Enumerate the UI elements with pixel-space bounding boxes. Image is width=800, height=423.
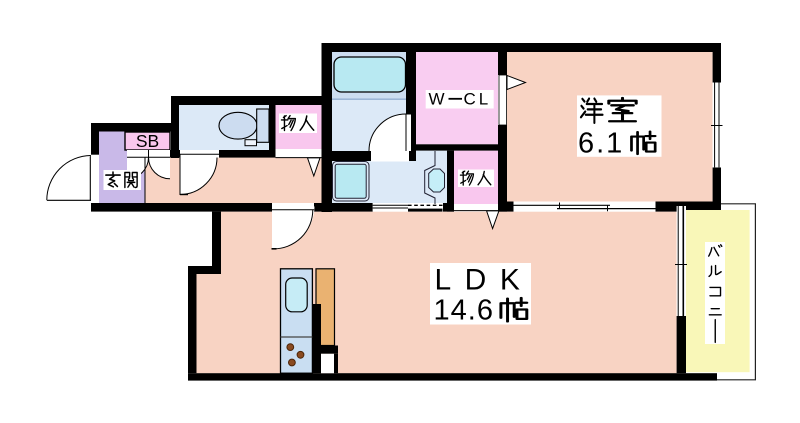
svg-text:W: W	[429, 90, 445, 109]
svg-text:LDK: LDK	[435, 264, 534, 297]
svg-text:6.1: 6.1	[578, 128, 624, 160]
svg-text:14.6: 14.6	[434, 295, 494, 327]
svg-text:SB: SB	[136, 131, 159, 151]
svg-text:CL: CL	[464, 90, 492, 109]
